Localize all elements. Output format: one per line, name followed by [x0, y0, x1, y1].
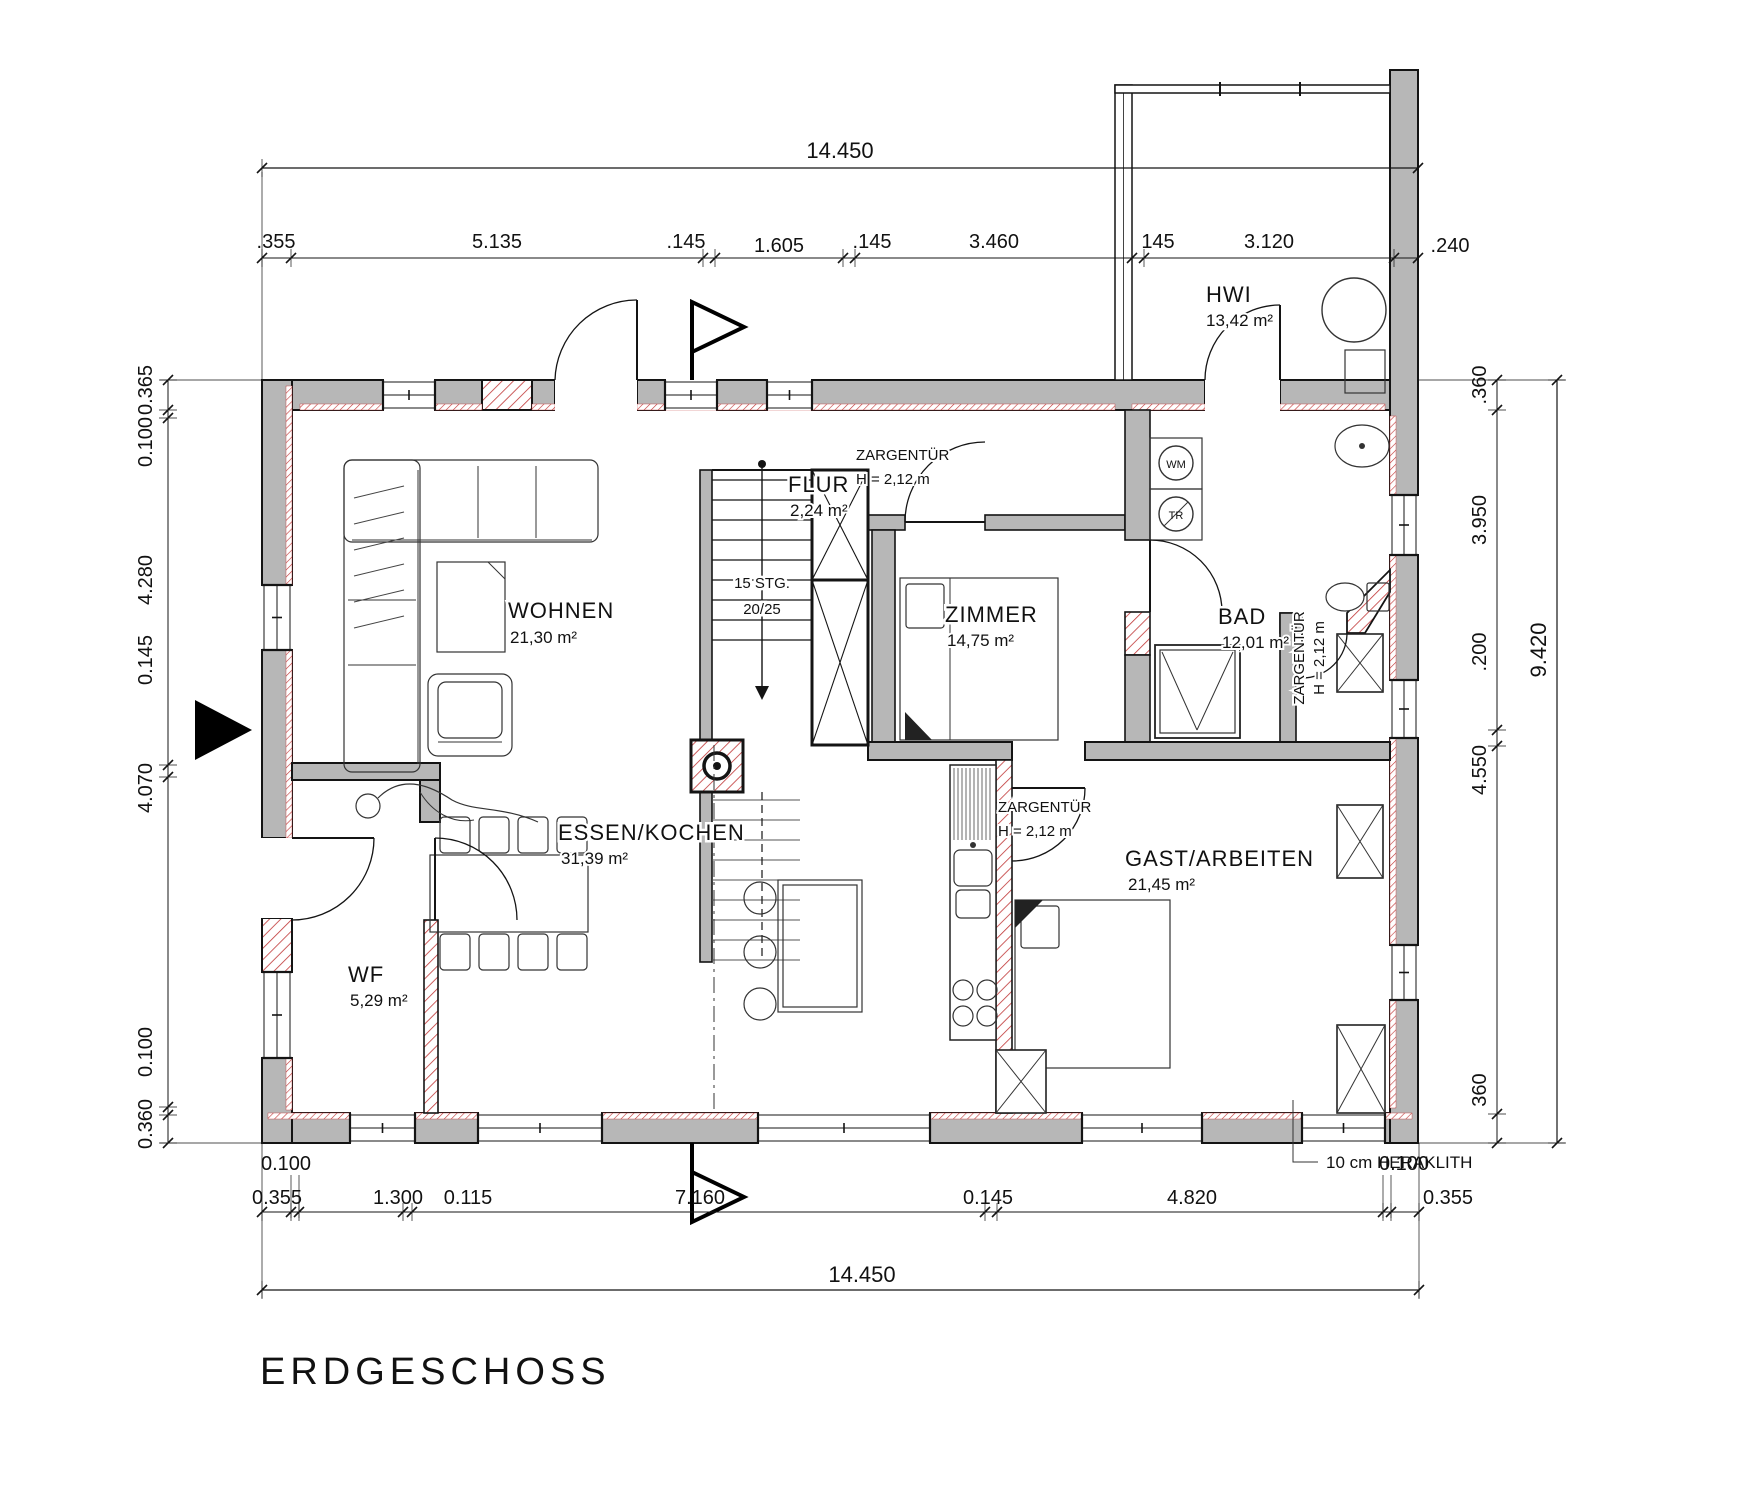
dimensions-left-1-label: 0.100: [135, 417, 157, 467]
dimensions-bottom-3-label: 0.115: [444, 1187, 493, 1209]
rooms-gast-area-label: 21,45 m²: [1128, 875, 1195, 894]
dimensions-right-4-label: 360: [1469, 1073, 1491, 1106]
dimensions-left-4-label: 4.070: [135, 763, 157, 813]
dimensions-bottom-1-label: 0.100: [261, 1153, 311, 1175]
rooms-flur-area-label: 2,24 m²: [790, 501, 848, 520]
title-label: ERDGESCHOSS: [260, 1351, 611, 1393]
dimensions-top-2-label: .145: [667, 231, 706, 253]
rooms-hwi-name-label: HWI: [1206, 282, 1252, 307]
dimensions-bottom-5-label: 0.145: [963, 1187, 1013, 1209]
dimensions-right-0-label: .360: [1469, 366, 1491, 405]
rooms-gast-name-label: GAST/ARBEITEN: [1125, 846, 1314, 871]
annotations-heraklith-label: 10 cm HERAKLITH: [1326, 1153, 1472, 1172]
appliances-wm-label: WM: [1166, 459, 1186, 471]
rooms-wf-name-label: WF: [348, 962, 384, 987]
window: [1082, 1113, 1202, 1143]
section-marker-top: [692, 302, 744, 352]
dimensions-top-7-label: 3.120: [1244, 231, 1294, 253]
dimensions-bottom-6-label: 4.820: [1167, 1187, 1217, 1209]
window: [1390, 945, 1418, 1000]
dimensions-left-2-label: 4.280: [135, 555, 157, 605]
dimensions-top-0-label: .355: [257, 231, 296, 253]
window: [767, 380, 812, 410]
dimensions-top-5-label: 3.460: [969, 231, 1019, 253]
dimensions-left-5-label: 0.100: [135, 1027, 157, 1077]
window: [478, 1113, 602, 1143]
dimensions-top-3-label: 1.605: [754, 235, 804, 257]
stairs-line2-label: 20/25: [743, 601, 781, 618]
dimensions-left-3-label: 0.145: [135, 635, 157, 685]
annotations-zargen_flur-l1-label: ZARGENTÜR: [856, 446, 950, 464]
rooms-wf-area-label: 5,29 m²: [350, 991, 408, 1010]
dimensions-bottom_total-label: 14.450: [828, 1262, 895, 1287]
dimensions-top-4-label: .145: [853, 231, 892, 253]
stairs-line1-label: 15 STG.: [734, 575, 790, 592]
rooms-zimmer-area-label: 14,75 m²: [947, 631, 1014, 650]
dimensions-top-1-label: 5.135: [472, 231, 522, 253]
rooms-wohnen-name-label: WOHNEN: [508, 598, 614, 623]
annotations-zargen_flur-l2-label: H = 2,12 m: [856, 471, 930, 488]
window: [262, 972, 292, 1058]
window: [262, 585, 292, 650]
entrance-arrow: [195, 700, 252, 760]
window: [665, 380, 717, 410]
rooms-bad-name-label: BAD: [1218, 604, 1266, 629]
window: [1302, 1113, 1385, 1143]
rooms-essen-name-label: ESSEN/KOCHEN: [558, 820, 745, 845]
dimensions-right_total-label: 9.420: [1526, 622, 1551, 677]
annotations-zargen_bad-l2-label: H = 2,12 m: [1311, 621, 1328, 695]
dimensions-bottom-4-label: 7.160: [675, 1187, 725, 1209]
appliances-tr-label: TR: [1169, 510, 1184, 522]
annotations-zargen_gast-l2-label: H = 2,12 m: [998, 823, 1072, 840]
dimensions-right-1-label: 3.950: [1469, 495, 1491, 545]
dimensions-left-0-label: 0.365: [135, 365, 157, 415]
dimensions-top-8-label: .240: [1431, 235, 1470, 257]
rooms-wohnen-area-label: 21,30 m²: [510, 628, 577, 647]
window: [758, 1113, 930, 1143]
rooms-essen-area-label: 31,39 m²: [561, 849, 628, 868]
rooms-zimmer-name-label: ZIMMER: [945, 602, 1038, 627]
dimensions-top_total-label: 14.450: [806, 138, 873, 163]
rooms-flur-name-label: FLUR: [788, 472, 849, 497]
window: [350, 1113, 415, 1143]
dimensions-left-6-label: 0.360: [135, 1099, 157, 1149]
dimensions-right-2-label: .200: [1469, 633, 1491, 672]
dimensions-bottom-2-label: 1.300: [373, 1187, 423, 1209]
dimensions-right-3-label: 4.550: [1469, 745, 1491, 795]
dimensions-bottom-0-label: 0.355: [252, 1187, 302, 1209]
rooms-hwi-area-label: 13,42 m²: [1206, 311, 1273, 330]
annotations-zargen_gast-l1-label: ZARGENTÜR: [998, 798, 1092, 816]
floor-plan-canvas: 14.450.3555.135.1451.605.1453.4601453.12…: [0, 0, 1740, 1498]
window: [1390, 680, 1418, 738]
annotations-zargen_bad-l1-label: ZARGENTÜR: [1290, 611, 1308, 705]
dimensions-top-6-label: 145: [1141, 231, 1174, 253]
window: [383, 380, 435, 410]
floorplan-page: 14.450.3555.135.1451.605.1453.4601453.12…: [0, 0, 1740, 1498]
dimensions-bottom-8-label: 0.355: [1423, 1187, 1473, 1209]
rooms-bad-area-label: 12,01 m²: [1222, 633, 1289, 652]
window: [1390, 495, 1418, 555]
